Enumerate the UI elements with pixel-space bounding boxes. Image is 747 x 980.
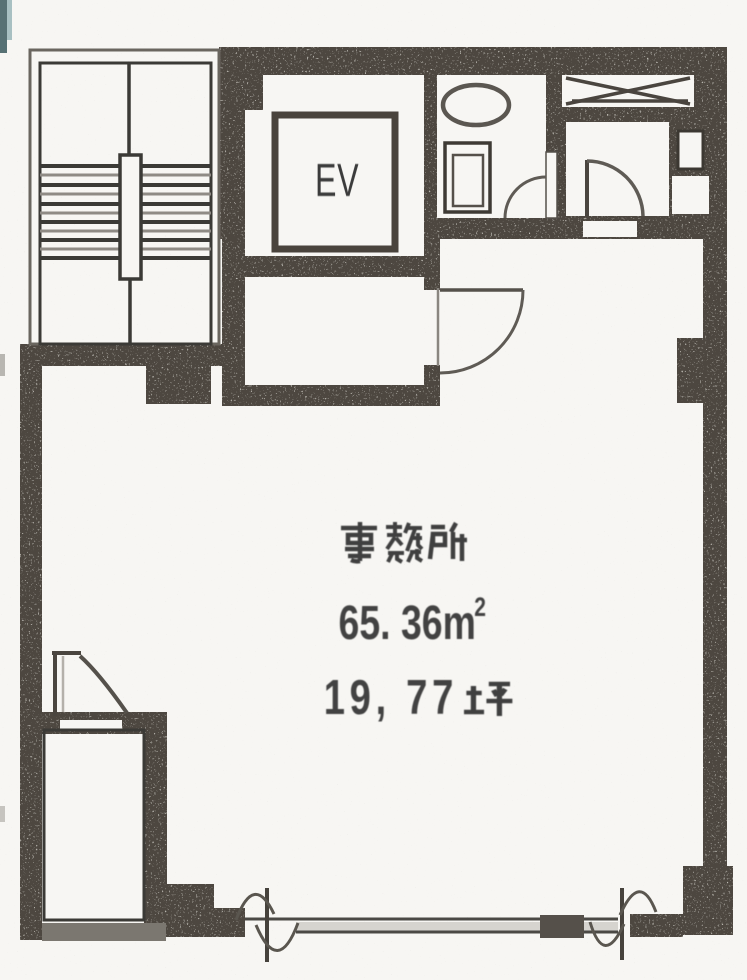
svg-text:19, 77: 19, 77 (324, 671, 458, 726)
svg-text:2: 2 (474, 593, 486, 623)
svg-text:EV: EV (315, 155, 359, 206)
svg-text:65. 36m: 65. 36m (339, 597, 476, 651)
